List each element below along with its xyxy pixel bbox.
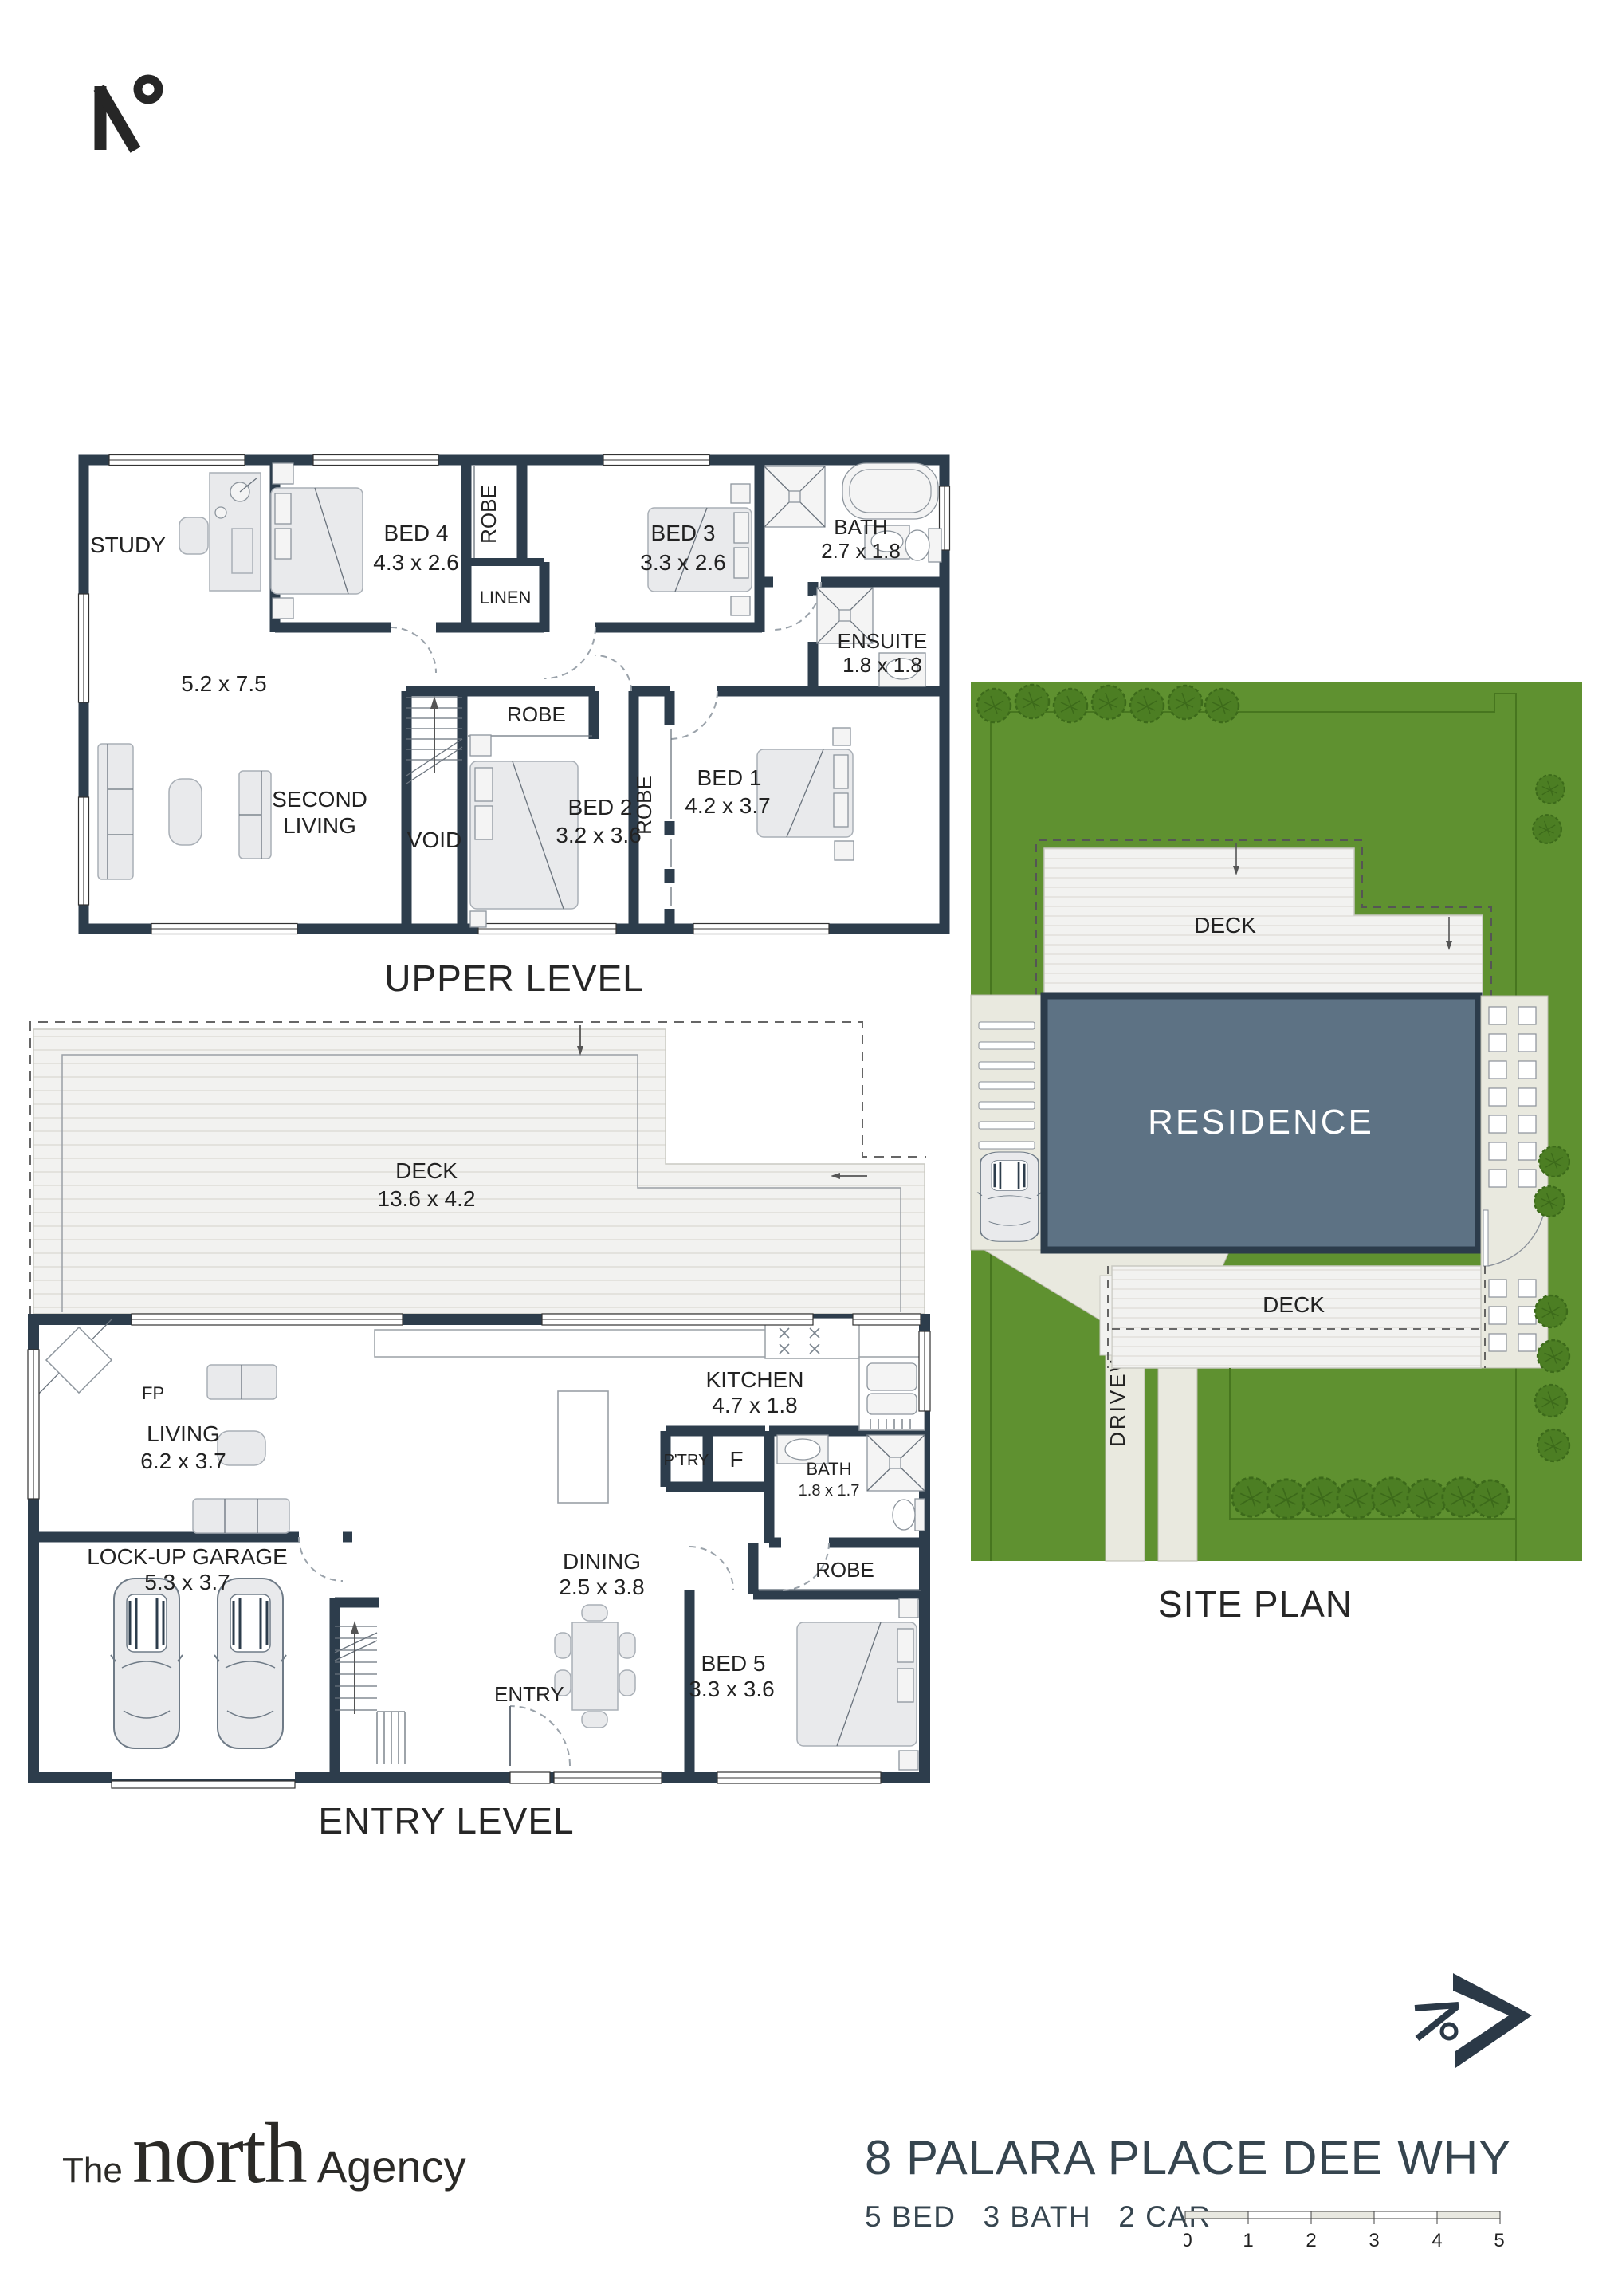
scale-tick-1: 1 [1243,2230,1253,2251]
label-entry-bath: BATH [806,1459,851,1479]
agency-logo: The north Agency [62,2105,466,2204]
entry-level-caption: ENTRY LEVEL [303,1799,590,1842]
bed5-furniture [797,1598,918,1770]
bottom-hedge [1232,1478,1509,1518]
label-entry-robe: ROBE [815,1558,874,1582]
logo-agency: Agency [317,2141,466,2192]
label-fp: FP [142,1383,164,1403]
label-dining-size: 2.5 x 3.8 [559,1575,644,1599]
logo-north: north [132,2105,306,2204]
label-site-deck-top: DECK [1194,913,1256,938]
north-compass-logo-icon [80,46,171,154]
label-bed2: BED 2 [568,795,633,820]
label-ensuite-size: 1.8 x 1.8 [842,653,922,677]
stat-beds: 5 BED [865,2200,956,2234]
stat-baths: 3 BATH [983,2200,1091,2234]
label-site-deck-bottom: DECK [1263,1292,1325,1317]
label-bed3-size: 3.3 x 2.6 [640,550,725,575]
label-living: LIVING [147,1421,220,1446]
label-bath-size: 2.7 x 1.8 [821,539,901,563]
property-address: 8 PALARA PLACE DEE WHY [865,2130,1511,2185]
entry-level-plan: DECK 13.6 x 4.2 [24,997,933,1798]
floorplan-document: STUDY 5.2 x 7.5 BED 4 4.3 x 2.6 ROBE LIN… [0,0,1622,2296]
entry-deck: DECK 13.6 x 4.2 [30,1022,926,1315]
label-bed5: BED 5 [701,1651,766,1676]
upper-level-caption: UPPER LEVEL [363,957,666,1000]
property-stats: 5 BED 3 BATH 2 CAR [865,2200,1212,2234]
label-residence: RESIDENCE [1148,1103,1374,1142]
scale-tick-5: 5 [1494,2230,1504,2251]
label-kitchen-size: 4.7 x 1.8 [712,1393,797,1417]
site-car [977,1152,1041,1241]
label-garage: LOCK-UP GARAGE [87,1544,288,1569]
label-entry-bath-size: 1.8 x 1.7 [799,1482,860,1500]
label-dining: DINING [563,1549,641,1574]
label-second-living-1: SECOND [272,787,367,812]
scale-tick-0: 0 [1184,2230,1192,2251]
label-bed1-size: 4.2 x 3.7 [685,793,770,818]
label-robe-bed1: ROBE [632,776,656,835]
label-bed4-size: 4.3 x 2.6 [373,550,458,575]
label-void: VOID [407,828,461,852]
label-robe-bed4: ROBE [477,485,501,544]
north-arrow-icon [1399,1963,1590,2098]
label-kitchen: KITCHEN [706,1367,804,1392]
label-bed5-size: 3.3 x 3.6 [689,1677,774,1701]
label-study: STUDY [90,533,166,557]
site-plan: DECK DRIVEWAY RESIDENCE [968,678,1586,1586]
scale-tick-3: 3 [1369,2230,1379,2251]
upper-level-plan: STUDY 5.2 x 7.5 BED 4 4.3 x 2.6 ROBE LIN… [76,450,952,938]
label-bath: BATH [834,515,887,539]
label-robe-bed2: ROBE [507,702,566,726]
label-deck-size: 13.6 x 4.2 [378,1186,476,1211]
label-bed4: BED 4 [384,521,449,545]
label-linen: LINEN [480,588,532,607]
site-plan-caption: SITE PLAN [1112,1582,1399,1626]
scale-tick-4: 4 [1432,2230,1442,2251]
label-garage-size: 5.3 x 3.7 [144,1570,230,1594]
label-living-size: 6.2 x 3.7 [140,1449,226,1473]
site-deck-bottom: DECK [1100,1266,1485,1368]
scale-bar: 0 1 2 3 4 5 [1184,2207,1518,2267]
label-fridge: F [729,1447,743,1472]
label-pantry: P'TRY [664,1452,709,1469]
residence: RESIDENCE [1044,996,1479,1250]
label-bed1: BED 1 [697,765,762,790]
label-open-size: 5.2 x 7.5 [181,671,266,696]
logo-the: The [62,2151,123,2191]
label-bed3: BED 3 [651,521,716,545]
label-ensuite: ENSUITE [838,629,928,653]
label-entry: ENTRY [494,1682,564,1706]
scale-tick-2: 2 [1306,2230,1316,2251]
label-second-living-2: LIVING [283,813,356,838]
label-deck: DECK [395,1158,458,1183]
label-bed2-size: 3.2 x 3.6 [556,823,641,847]
